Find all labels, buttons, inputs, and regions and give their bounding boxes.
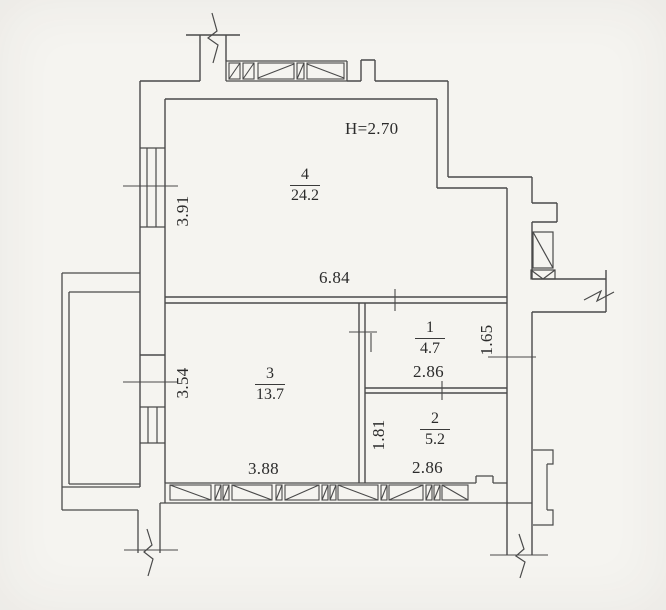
floor-plan-drawing: [0, 0, 666, 610]
right-door-frame: [533, 450, 553, 525]
dim-hall-width: 6.84: [319, 269, 350, 286]
dim-room1-depth: 1.65: [476, 317, 496, 363]
room-2-label: 2 5.2: [412, 410, 458, 448]
dim-room3-width: 3.88: [248, 460, 279, 477]
room-4-number: 4: [290, 166, 320, 186]
room-1-number: 1: [415, 319, 445, 339]
top-window-band: [226, 61, 347, 81]
room-4-area: 24.2: [291, 186, 319, 205]
dim-room1-width: 2.86: [413, 363, 444, 380]
walls: [140, 35, 606, 555]
room-3-number: 3: [255, 365, 285, 385]
room-4-label: 4 24.2: [282, 166, 328, 204]
bottom-window-band: [160, 476, 532, 503]
dim-room2-depth: 1.81: [368, 412, 388, 458]
room-1-area: 4.7: [420, 339, 440, 358]
dim-left-window-upper: 3.91: [172, 188, 192, 234]
room-2-area: 5.2: [425, 430, 445, 449]
room-2-number: 2: [420, 410, 450, 430]
vent-shaft: [531, 232, 555, 279]
dim-left-window-lower: 3.54: [172, 360, 192, 406]
ceiling-height-label: H=2.70: [345, 120, 398, 137]
floor-plan-page: H=2.70 4 24.2 3 13.7 1 4.7 2 5.2 6.84 2.…: [0, 0, 666, 610]
left-windows: [140, 148, 165, 443]
dim-room2-width: 2.86: [412, 459, 443, 476]
balcony-outline: [62, 273, 160, 553]
room-3-area: 13.7: [256, 385, 284, 404]
room-1-label: 1 4.7: [407, 319, 453, 357]
room-3-label: 3 13.7: [247, 365, 293, 403]
